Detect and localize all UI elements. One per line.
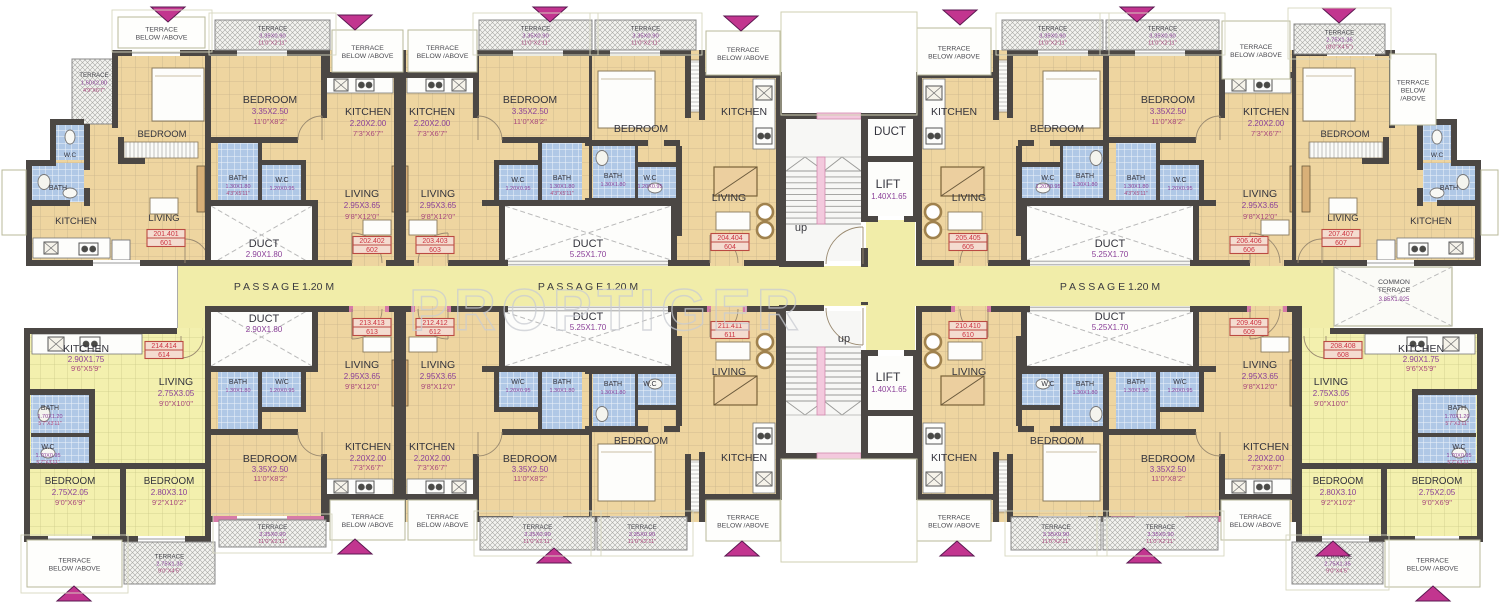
svg-text:201.401: 201.401 — [153, 231, 178, 238]
svg-text:TERRACE: TERRACE — [145, 27, 178, 34]
svg-text:W.C: W.C — [41, 444, 54, 451]
svg-text:3.85X1.925: 3.85X1.925 — [1379, 297, 1410, 303]
svg-text:up: up — [795, 222, 807, 234]
svg-text:DUCT: DUCT — [874, 126, 906, 138]
svg-text:LIVING: LIVING — [1243, 188, 1277, 200]
svg-text:BATH: BATH — [604, 173, 622, 180]
svg-text:4'9"X6'7": 4'9"X6'7" — [83, 88, 105, 94]
svg-text:BATH: BATH — [1076, 173, 1094, 180]
svg-text:1.20X0.95: 1.20X0.95 — [637, 184, 662, 190]
svg-text:1.40X1.65: 1.40X1.65 — [871, 385, 907, 394]
svg-text:PROPTIGER: PROPTIGER — [409, 278, 805, 343]
svg-text:KITCHEN: KITCHEN — [409, 441, 455, 453]
svg-text:TERRACE: TERRACE — [727, 515, 760, 522]
svg-text:BEDROOM: BEDROOM — [614, 123, 668, 135]
svg-text:1.40X1.65: 1.40X1.65 — [871, 192, 907, 201]
svg-text:BEDROOM: BEDROOM — [45, 476, 96, 487]
svg-text:1.30X1.80: 1.30X1.80 — [549, 184, 574, 190]
svg-text:7'3"X6'7": 7'3"X6'7" — [353, 129, 383, 138]
svg-text:LIVING: LIVING — [712, 366, 746, 378]
svg-text:TERRACE: TERRACE — [58, 558, 91, 565]
svg-text:(8'0"X4'5"): (8'0"X4'5") — [1326, 45, 1353, 51]
svg-text:TERRACE: TERRACE — [938, 515, 971, 522]
svg-text:1.30X1.80: 1.30X1.80 — [225, 184, 250, 190]
svg-text:613: 613 — [366, 329, 378, 336]
svg-text:DUCT: DUCT — [1095, 311, 1126, 323]
svg-text:2.75X2.05: 2.75X2.05 — [52, 488, 89, 497]
svg-text:1.70X0.95: 1.70X0.95 — [1446, 453, 1471, 459]
svg-text:1.30X1.80: 1.30X1.80 — [1123, 184, 1148, 190]
svg-text:BELOW /ABOVE: BELOW /ABOVE — [928, 523, 980, 530]
svg-text:W.C: W.C — [643, 381, 656, 388]
svg-text:KITCHEN: KITCHEN — [721, 452, 767, 464]
svg-text:2.75X1.35: 2.75X1.35 — [1326, 38, 1352, 44]
svg-text:1.20X0.95: 1.20X0.95 — [1167, 186, 1192, 192]
svg-text:3.35X0.90: 3.35X0.90 — [1043, 532, 1069, 538]
svg-text:BELOW /ABOVE: BELOW /ABOVE — [417, 522, 469, 529]
svg-text:BELOW /ABOVE: BELOW /ABOVE — [136, 35, 188, 42]
svg-text:9'0"X10'0": 9'0"X10'0" — [1314, 399, 1348, 408]
svg-text:LIVING: LIVING — [1243, 359, 1277, 371]
svg-text:2.90X1.75: 2.90X1.75 — [68, 355, 105, 364]
svg-text:BELOW /ABOVE: BELOW /ABOVE — [342, 53, 394, 60]
svg-text:BEDROOM: BEDROOM — [243, 94, 297, 106]
svg-text:9'8"X12'0": 9'8"X12'0" — [421, 212, 455, 221]
svg-text:11'0"X2'11": 11'0"X2'11" — [258, 539, 287, 545]
svg-text:2.20X2.00: 2.20X2.00 — [414, 119, 451, 128]
svg-text:7'3"X6'7": 7'3"X6'7" — [417, 129, 447, 138]
svg-text:9'8"X12'0": 9'8"X12'0" — [421, 382, 455, 391]
svg-text:5'7"X3'11": 5'7"X3'11" — [38, 421, 61, 427]
svg-text:BATH: BATH — [1127, 379, 1145, 386]
svg-text:11'0"X2'11": 11'0"X2'11" — [628, 539, 657, 545]
svg-text:W.C: W.C — [1041, 381, 1054, 388]
svg-text:W/C: W/C — [275, 379, 289, 386]
svg-text:TERRACE: TERRACE — [1148, 26, 1178, 33]
svg-text:11'0"X2'11": 11'0"X2'11" — [1038, 41, 1067, 47]
svg-text:605: 605 — [962, 244, 974, 251]
svg-text:11'0"X2'11": 11'0"X2'11" — [631, 41, 660, 47]
svg-text:3.35X0.90: 3.35X0.90 — [1149, 34, 1175, 40]
svg-text:BATH: BATH — [1076, 381, 1094, 388]
svg-text:W.C: W.C — [1452, 444, 1465, 451]
svg-text:9'6"X5'9": 9'6"X5'9" — [1406, 364, 1436, 373]
svg-text:KITCHEN: KITCHEN — [1398, 343, 1444, 355]
svg-text:TERRACE: TERRACE — [1239, 514, 1272, 521]
svg-text:1.30X1.80: 1.30X1.80 — [225, 388, 250, 394]
svg-text:LIVING: LIVING — [345, 188, 379, 200]
svg-text:5.25X1.70: 5.25X1.70 — [570, 250, 607, 259]
svg-text:BEDROOM: BEDROOM — [137, 129, 186, 140]
svg-text:W.C: W.C — [643, 175, 656, 182]
svg-text:2.75X3.05: 2.75X3.05 — [158, 389, 195, 398]
svg-text:209.409: 209.409 — [1236, 320, 1261, 327]
svg-text:KITCHEN: KITCHEN — [1410, 216, 1452, 227]
svg-text:3.35X0.90: 3.35X0.90 — [632, 34, 658, 40]
svg-text:TERRACE: TERRACE — [1146, 524, 1176, 531]
svg-text:W.C: W.C — [1041, 175, 1054, 182]
svg-text:4'3"X5'11": 4'3"X5'11" — [1124, 191, 1147, 197]
svg-text:2.90X1.75: 2.90X1.75 — [1403, 355, 1440, 364]
svg-text:BEDROOM: BEDROOM — [614, 435, 668, 447]
svg-text:BATH: BATH — [553, 175, 571, 182]
svg-text:9'0"X10'0": 9'0"X10'0" — [159, 399, 193, 408]
svg-text:2.90X1.80: 2.90X1.80 — [246, 325, 283, 334]
svg-text:601: 601 — [160, 240, 172, 247]
svg-text:3.35X0.90: 3.35X0.90 — [1039, 34, 1065, 40]
svg-text:2.20X2.00: 2.20X2.00 — [1248, 119, 1285, 128]
svg-text:DUCT: DUCT — [249, 238, 280, 250]
svg-text:1.30X1.80: 1.30X1.80 — [1072, 182, 1097, 188]
svg-text:7'3"X6'7": 7'3"X6'7" — [417, 463, 447, 472]
svg-text:BELOW /ABOVE: BELOW /ABOVE — [1407, 566, 1459, 573]
svg-text:LIVING: LIVING — [952, 192, 986, 204]
svg-text:LIVING: LIVING — [1314, 376, 1348, 388]
svg-text:DUCT: DUCT — [249, 313, 280, 325]
svg-text:11'0"X2'11": 11'0"X2'11" — [521, 41, 550, 47]
svg-text:TERRACE: TERRACE — [1038, 26, 1068, 33]
svg-text:BATH: BATH — [41, 405, 59, 412]
svg-text:TERRACE: TERRACE — [155, 554, 185, 561]
svg-text:11'0"X2'11": 11'0"X2'11" — [1042, 539, 1071, 545]
svg-text:606: 606 — [1243, 247, 1255, 254]
svg-text:BEDROOM: BEDROOM — [1030, 435, 1084, 447]
svg-text:KITCHEN: KITCHEN — [931, 106, 977, 118]
svg-text:LIVING: LIVING — [421, 188, 455, 200]
svg-text:BEDROOM: BEDROOM — [1030, 123, 1084, 135]
svg-text:W/C: W/C — [1173, 379, 1187, 386]
svg-text:2.95X3.65: 2.95X3.65 — [344, 372, 381, 381]
svg-text:2.75X1.35: 2.75X1.35 — [1324, 562, 1350, 568]
svg-text:9'0"X4'5": 9'0"X4'5" — [1326, 569, 1349, 575]
svg-text:2.20X2.00: 2.20X2.00 — [350, 119, 387, 128]
svg-text:604: 604 — [724, 244, 736, 251]
svg-text:KITCHEN: KITCHEN — [345, 441, 391, 453]
svg-text:11'0"X8'2": 11'0"X8'2" — [253, 474, 287, 483]
svg-text:TERRACE: TERRACE — [426, 45, 459, 52]
svg-text:LIVING: LIVING — [148, 213, 179, 224]
svg-text:TERRACE: TERRACE — [1325, 30, 1355, 37]
svg-text:W.C: W.C — [1173, 177, 1186, 184]
svg-text:607: 607 — [1335, 240, 1347, 247]
svg-text:11'0"X8'2": 11'0"X8'2" — [1151, 117, 1185, 126]
svg-text:BEDROOM: BEDROOM — [144, 476, 195, 487]
svg-text:5'7"X3'11": 5'7"X3'11" — [1445, 421, 1468, 427]
svg-text:BATH: BATH — [553, 379, 571, 386]
svg-text:TERRACE: TERRACE — [426, 514, 459, 521]
svg-text:4'3"X5'11": 4'3"X5'11" — [226, 191, 249, 197]
svg-text:5'7"X3'11": 5'7"X3'11" — [36, 460, 59, 466]
svg-text:2.80X3.10: 2.80X3.10 — [151, 488, 188, 497]
svg-text:W.C: W.C — [511, 177, 524, 184]
svg-text:205.405: 205.405 — [955, 235, 980, 242]
svg-text:608: 608 — [1337, 352, 1349, 359]
svg-text:1.20X0.95: 1.20X0.95 — [269, 186, 294, 192]
svg-text:5'7"X3'11": 5'7"X3'11" — [1447, 460, 1470, 466]
svg-text:KITCHEN: KITCHEN — [1243, 441, 1289, 453]
svg-text:609: 609 — [1243, 329, 1255, 336]
svg-text:4'3"X5'11": 4'3"X5'11" — [550, 191, 573, 197]
svg-text:LIFT: LIFT — [876, 370, 901, 384]
svg-text:BEDROOM: BEDROOM — [1141, 94, 1195, 106]
svg-text:W.C: W.C — [64, 152, 77, 159]
svg-text:11'0"X2'11": 11'0"X2'11" — [1148, 41, 1177, 47]
svg-text:BATH: BATH — [1127, 175, 1145, 182]
svg-text:2.95X3.65: 2.95X3.65 — [420, 372, 457, 381]
svg-text:1.70X0.95: 1.70X0.95 — [35, 453, 60, 459]
svg-text:LIVING: LIVING — [421, 359, 455, 371]
svg-text:TERRACE: TERRACE — [627, 524, 657, 531]
svg-text:TERRACE: TERRACE — [351, 514, 384, 521]
svg-text:5.25X1.70: 5.25X1.70 — [1092, 323, 1129, 332]
svg-text:9'8"X12'0": 9'8"X12'0" — [345, 212, 379, 221]
svg-text:BELOW /ABOVE: BELOW /ABOVE — [342, 522, 394, 529]
svg-text:BEDROOM: BEDROOM — [503, 453, 557, 465]
svg-text:KITCHEN: KITCHEN — [721, 106, 767, 118]
svg-text:BELOW /ABOVE: BELOW /ABOVE — [928, 54, 980, 61]
svg-text:614: 614 — [158, 352, 170, 359]
svg-text:9'8"X12'0": 9'8"X12'0" — [345, 382, 379, 391]
svg-text:TERRACE: TERRACE — [523, 524, 553, 531]
svg-text:LIVING: LIVING — [345, 359, 379, 371]
svg-text:BELOW /ABOVE: BELOW /ABOVE — [417, 53, 469, 60]
svg-text:KITCHEN: KITCHEN — [63, 343, 109, 355]
svg-text:11'0"X2'11": 11'0"X2'11" — [523, 539, 552, 545]
svg-text:TERRACE: TERRACE — [1397, 80, 1430, 87]
svg-text:9'0"X6'9": 9'0"X6'9" — [55, 498, 85, 507]
svg-text:3.35X2.50: 3.35X2.50 — [512, 465, 549, 474]
svg-text:P A S S A G E 1.20 M: P A S S A G E 1.20 M — [234, 281, 334, 293]
svg-text:203.403: 203.403 — [422, 238, 447, 245]
svg-text:TERRACE: TERRACE — [79, 72, 109, 79]
svg-text:BELOW /ABOVE: BELOW /ABOVE — [1230, 52, 1282, 59]
svg-text:5.25X1.70: 5.25X1.70 — [1092, 250, 1129, 259]
svg-text:TERRACE: TERRACE — [1041, 524, 1071, 531]
svg-text:COMMON: COMMON — [1378, 279, 1410, 286]
svg-text:LIVING: LIVING — [1327, 213, 1358, 224]
svg-text:BATH: BATH — [49, 185, 67, 192]
svg-text:KITCHEN: KITCHEN — [55, 216, 97, 227]
svg-text:1.30X1.80: 1.30X1.80 — [549, 388, 574, 394]
svg-text:P A S S A G E 1.20 M: P A S S A G E 1.20 M — [1060, 281, 1160, 293]
svg-text:BATH: BATH — [1448, 405, 1466, 412]
svg-text:3.35X0.90: 3.35X0.90 — [522, 34, 548, 40]
svg-text:TERRACE: TERRACE — [727, 47, 760, 54]
svg-text:BELOW /ABOVE: BELOW /ABOVE — [717, 523, 769, 530]
svg-text:up: up — [838, 333, 850, 345]
svg-text:BEDROOM: BEDROOM — [1141, 453, 1195, 465]
svg-text:204.404: 204.404 — [717, 235, 742, 242]
svg-text:11'0"X8'2": 11'0"X8'2" — [253, 117, 287, 126]
svg-text:W/C: W/C — [511, 379, 525, 386]
svg-text:1.30X1.80: 1.30X1.80 — [600, 182, 625, 188]
svg-text:3.35X0.90: 3.35X0.90 — [259, 532, 285, 538]
svg-text:LIFT: LIFT — [876, 177, 901, 191]
svg-text:KITCHEN: KITCHEN — [409, 106, 455, 118]
svg-text:1.50X2.00: 1.50X2.00 — [81, 81, 107, 87]
svg-text:11'0"X2'11": 11'0"X2'11" — [1146, 539, 1175, 545]
svg-text:TERRACE: TERRACE — [521, 26, 551, 33]
svg-text:BELOW /ABOVE: BELOW /ABOVE — [1230, 522, 1282, 529]
svg-text:BELOW /ABOVE: BELOW /ABOVE — [49, 566, 101, 573]
svg-text:2.80X3.10: 2.80X3.10 — [1320, 488, 1357, 497]
svg-text:206.406: 206.406 — [1236, 238, 1261, 245]
svg-text:11'0"X8'2": 11'0"X8'2" — [1151, 474, 1185, 483]
svg-text:BATH: BATH — [1440, 185, 1458, 192]
svg-text:210.410: 210.410 — [955, 323, 980, 330]
svg-text:3.35X2.50: 3.35X2.50 — [252, 107, 289, 116]
svg-text:3.35X2.50: 3.35X2.50 — [252, 465, 289, 474]
svg-text:2.95X3.65: 2.95X3.65 — [344, 201, 381, 210]
svg-text:DUCT: DUCT — [573, 238, 604, 250]
svg-text:2.90X1.80: 2.90X1.80 — [246, 250, 283, 259]
svg-text:3.35X0.90: 3.35X0.90 — [1147, 532, 1173, 538]
svg-text:3.35X2.50: 3.35X2.50 — [1150, 107, 1187, 116]
svg-text:1.70X1.20: 1.70X1.20 — [1444, 414, 1469, 420]
svg-text:9'6"X5'9": 9'6"X5'9" — [71, 364, 101, 373]
svg-text:1.20X0.95: 1.20X0.95 — [1167, 388, 1192, 394]
svg-text:9'0"X4'5": 9'0"X4'5" — [158, 569, 181, 575]
svg-text:1.30X1.80: 1.30X1.80 — [1123, 388, 1148, 394]
svg-text:TERRACE: TERRACE — [1240, 44, 1273, 51]
svg-text:BELOW /ABOVE: BELOW /ABOVE — [717, 55, 769, 62]
svg-text:603: 603 — [429, 247, 441, 254]
svg-text:1.30X1.80: 1.30X1.80 — [600, 390, 625, 396]
svg-text:7'3"X6'7": 7'3"X6'7" — [1251, 463, 1281, 472]
svg-text:LIVING: LIVING — [159, 376, 193, 388]
svg-text:610: 610 — [962, 332, 974, 339]
svg-text:2.20X2.00: 2.20X2.00 — [414, 454, 451, 463]
svg-text:DUCT: DUCT — [1095, 238, 1126, 250]
svg-text:9'8"X12'0": 9'8"X12'0" — [1243, 382, 1277, 391]
svg-text:11'0"X2'11": 11'0"X2'11" — [258, 41, 287, 47]
svg-text:9'0"X6'9": 9'0"X6'9" — [1422, 498, 1452, 507]
svg-text:11'0"X8'2": 11'0"X8'2" — [513, 117, 547, 126]
svg-text:/ABOVE: /ABOVE — [1400, 96, 1426, 103]
svg-text:TERRACE: TERRACE — [1416, 558, 1449, 565]
svg-text:TERRACE: TERRACE — [258, 524, 288, 531]
svg-text:BATH: BATH — [604, 381, 622, 388]
svg-text:2.20X2.00: 2.20X2.00 — [350, 454, 387, 463]
svg-text:9'2"X10'2": 9'2"X10'2" — [1321, 498, 1355, 507]
svg-text:207.407: 207.407 — [1328, 231, 1353, 238]
svg-text:9'2"X10'2": 9'2"X10'2" — [152, 498, 186, 507]
svg-text:9'8"X12'0": 9'8"X12'0" — [1243, 212, 1277, 221]
svg-text:208.408: 208.408 — [1330, 343, 1355, 350]
svg-text:TERRACE: TERRACE — [938, 46, 971, 53]
svg-text:2.95X3.65: 2.95X3.65 — [420, 201, 457, 210]
svg-text:KITCHEN: KITCHEN — [345, 106, 391, 118]
svg-text:BEDROOM: BEDROOM — [243, 453, 297, 465]
svg-text:1.30X1.80: 1.30X1.80 — [1072, 390, 1097, 396]
svg-text:1.20X0.95: 1.20X0.95 — [1035, 184, 1060, 190]
svg-text:7'3"X6'7": 7'3"X6'7" — [1251, 129, 1281, 138]
svg-text:3.35X0.90: 3.35X0.90 — [259, 34, 285, 40]
svg-text:TERRACE: TERRACE — [351, 45, 384, 52]
svg-text:214.414: 214.414 — [151, 343, 176, 350]
svg-text:3.35X0.90: 3.35X0.90 — [524, 532, 550, 538]
svg-text:2.75X2.05: 2.75X2.05 — [1419, 488, 1456, 497]
svg-text:W.C: W.C — [275, 177, 288, 184]
svg-text:1.20X0.95: 1.20X0.95 — [505, 388, 530, 394]
svg-text:1.20X0.95: 1.20X0.95 — [269, 388, 294, 394]
svg-text:2.75X3.05: 2.75X3.05 — [1313, 389, 1350, 398]
svg-text:2.95X3.65: 2.95X3.65 — [1242, 201, 1279, 210]
svg-text:KITCHEN: KITCHEN — [1243, 106, 1289, 118]
svg-text:11'0"X8'2": 11'0"X8'2" — [513, 474, 547, 483]
svg-text:KITCHEN: KITCHEN — [931, 452, 977, 464]
svg-text:TERRACE: TERRACE — [1378, 287, 1411, 294]
svg-text:3.35X2.50: 3.35X2.50 — [1150, 465, 1187, 474]
svg-text:TERRACE: TERRACE — [631, 26, 661, 33]
svg-text:3.35X0.90: 3.35X0.90 — [629, 532, 655, 538]
svg-text:BEDROOM: BEDROOM — [1313, 476, 1364, 487]
svg-text:W.C: W.C — [1431, 152, 1444, 159]
svg-text:1.70X1.20: 1.70X1.20 — [37, 414, 62, 420]
svg-text:602: 602 — [366, 247, 378, 254]
svg-text:TERRACE: TERRACE — [258, 26, 288, 33]
svg-text:7'3"X6'7": 7'3"X6'7" — [353, 463, 383, 472]
svg-text:3.35X2.50: 3.35X2.50 — [512, 107, 549, 116]
svg-text:LIVING: LIVING — [712, 192, 746, 204]
svg-text:BATH: BATH — [229, 379, 247, 386]
svg-text:2.20X2.00: 2.20X2.00 — [1248, 454, 1285, 463]
svg-text:BEDROOM: BEDROOM — [1320, 129, 1369, 140]
svg-text:LIVING: LIVING — [952, 366, 986, 378]
svg-text:2.95X3.65: 2.95X3.65 — [1242, 372, 1279, 381]
svg-text:BEDROOM: BEDROOM — [1412, 476, 1463, 487]
svg-text:2.75X1.35: 2.75X1.35 — [156, 562, 182, 568]
svg-text:BATH: BATH — [229, 175, 247, 182]
svg-text:1.20X0.95: 1.20X0.95 — [505, 186, 530, 192]
svg-text:213.413: 213.413 — [359, 320, 384, 327]
svg-text:BEDROOM: BEDROOM — [503, 94, 557, 106]
svg-text:202.402: 202.402 — [359, 238, 384, 245]
svg-text:BELOW: BELOW — [1401, 88, 1426, 95]
